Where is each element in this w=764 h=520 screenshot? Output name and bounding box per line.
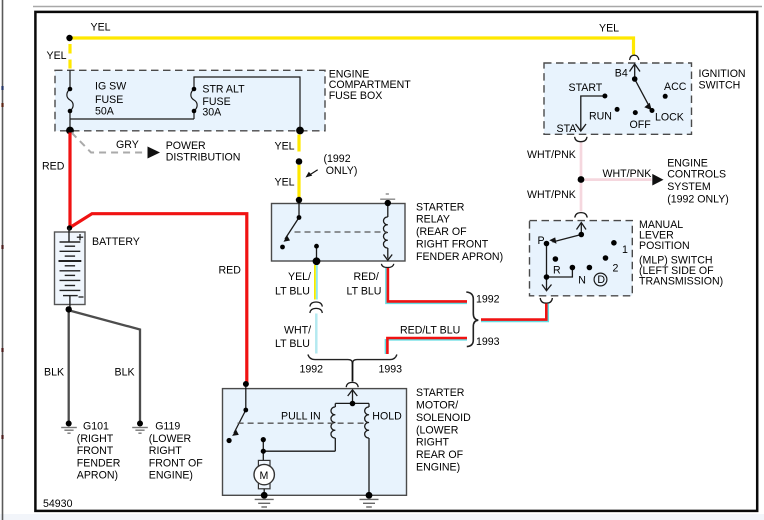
svg-text:N: N <box>578 274 586 286</box>
svg-text:1993: 1993 <box>476 336 500 348</box>
svg-text:1992: 1992 <box>476 293 500 305</box>
svg-text:FUSE: FUSE <box>95 94 123 106</box>
svg-text:RIGHT: RIGHT <box>416 437 449 449</box>
svg-text:START: START <box>569 82 603 94</box>
svg-text:STR ALT: STR ALT <box>202 84 245 96</box>
svg-text:YEL/: YEL/ <box>288 271 311 283</box>
svg-text:FENDER: FENDER <box>77 457 121 469</box>
svg-text:FENDER APRON): FENDER APRON) <box>416 251 503 263</box>
svg-text:YEL: YEL <box>91 22 111 34</box>
svg-text:STARTER: STARTER <box>416 201 465 213</box>
svg-text:APRON): APRON) <box>77 470 118 482</box>
svg-text:RED: RED <box>42 161 65 173</box>
svg-text:RED: RED <box>219 265 242 277</box>
svg-text:WHT/PNK: WHT/PNK <box>603 168 652 180</box>
svg-text:RIGHT FRONT: RIGHT FRONT <box>416 239 489 251</box>
svg-text:P: P <box>538 235 545 247</box>
svg-text:DISTRIBUTION: DISTRIBUTION <box>166 151 241 163</box>
svg-text:FRONT: FRONT <box>77 445 114 457</box>
svg-text:(1992: (1992 <box>324 153 351 165</box>
svg-text:2: 2 <box>613 263 619 275</box>
svg-text:G101: G101 <box>83 421 109 433</box>
svg-text:1992: 1992 <box>300 363 324 375</box>
svg-text:54930: 54930 <box>43 498 73 510</box>
svg-text:SYSTEM: SYSTEM <box>667 181 711 193</box>
svg-text:GRY: GRY <box>116 139 139 151</box>
svg-text:MOTOR/: MOTOR/ <box>416 400 458 412</box>
svg-text:RELAY: RELAY <box>416 214 450 226</box>
svg-text:PULL IN: PULL IN <box>281 410 321 422</box>
svg-text:1993: 1993 <box>379 363 403 375</box>
svg-text:IG SW: IG SW <box>95 80 126 92</box>
svg-text:(LOWER: (LOWER <box>416 424 459 436</box>
svg-text:POWER: POWER <box>166 140 206 152</box>
svg-text:IGNITION: IGNITION <box>699 68 746 80</box>
svg-text:WHT/PNK: WHT/PNK <box>527 149 576 161</box>
svg-text:STARTER: STARTER <box>416 387 465 399</box>
svg-text:1: 1 <box>622 244 628 256</box>
svg-text:ONLY): ONLY) <box>326 165 358 177</box>
svg-text:BLK: BLK <box>44 366 64 378</box>
svg-text:LT BLU: LT BLU <box>275 285 310 297</box>
svg-text:POSITION: POSITION <box>639 240 690 252</box>
svg-text:STA: STA <box>557 123 578 135</box>
svg-text:G119: G119 <box>155 421 180 433</box>
svg-text:YEL: YEL <box>47 50 67 62</box>
svg-text:WHT/PNK: WHT/PNK <box>527 189 576 201</box>
svg-text:D: D <box>597 274 605 286</box>
svg-text:FUSE BOX: FUSE BOX <box>329 90 383 102</box>
svg-text:B4: B4 <box>615 68 628 80</box>
svg-text:FRONT OF: FRONT OF <box>149 457 203 469</box>
svg-text:RED/LT BLU: RED/LT BLU <box>400 324 460 336</box>
svg-text:(LOWER: (LOWER <box>149 433 192 445</box>
svg-text:LOCK: LOCK <box>655 112 684 124</box>
svg-text:(RIGHT: (RIGHT <box>77 433 114 445</box>
svg-text:R: R <box>553 264 561 276</box>
svg-text:CONTROLS: CONTROLS <box>667 168 726 180</box>
svg-text:ENGINE): ENGINE) <box>416 462 460 474</box>
svg-text:YEL: YEL <box>275 177 295 189</box>
svg-text:HOLD: HOLD <box>372 410 402 422</box>
svg-text:WHT/: WHT/ <box>284 324 311 336</box>
svg-text:SOLENOID: SOLENOID <box>416 412 471 424</box>
svg-text:M: M <box>260 470 269 482</box>
svg-text:BLK: BLK <box>115 366 135 378</box>
svg-text:(1992 ONLY): (1992 ONLY) <box>667 194 729 206</box>
svg-text:30A: 30A <box>202 107 222 119</box>
svg-text:LT BLU: LT BLU <box>275 338 310 350</box>
svg-text:YEL: YEL <box>599 23 619 35</box>
svg-text:REAR OF: REAR OF <box>416 449 464 461</box>
svg-text:ACC: ACC <box>664 81 687 93</box>
svg-text:50A: 50A <box>95 106 115 118</box>
svg-text:YEL: YEL <box>275 140 295 152</box>
svg-text:BATTERY: BATTERY <box>92 236 140 248</box>
svg-text:OFF: OFF <box>630 119 652 131</box>
svg-text:RUN: RUN <box>589 111 612 123</box>
svg-text:(REAR OF: (REAR OF <box>416 226 467 238</box>
svg-text:LT BLU: LT BLU <box>347 285 382 297</box>
svg-text:SWITCH: SWITCH <box>699 79 741 91</box>
svg-text:RIGHT: RIGHT <box>149 445 182 457</box>
svg-text:TRANSMISSION): TRANSMISSION) <box>639 276 723 288</box>
svg-text:RED/: RED/ <box>354 271 379 283</box>
svg-text:ENGINE): ENGINE) <box>149 470 193 482</box>
